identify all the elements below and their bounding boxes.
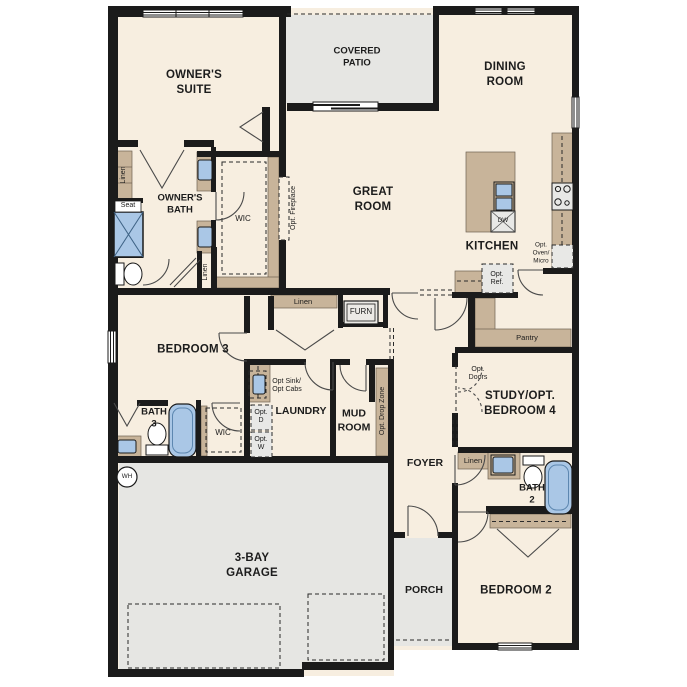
opt-ref-box (482, 264, 513, 293)
bathtub-icon (545, 461, 572, 514)
opt-washer-box (251, 432, 272, 457)
toilet-icon (523, 456, 544, 488)
sink-icon (493, 457, 513, 473)
dining-side-window (572, 97, 579, 128)
cooktop-icon (552, 183, 573, 210)
wic-shelf-bottom (216, 277, 279, 288)
bedroom3-window (108, 331, 116, 363)
bedroom2-window (498, 643, 532, 650)
sink-icon (198, 160, 212, 180)
garage-area (119, 463, 388, 670)
pantry-shelf-bottom (475, 329, 571, 347)
wic-shelf-right (268, 157, 279, 285)
bathtub-icon (169, 404, 196, 457)
sink-icon (253, 375, 265, 394)
sink-icon (496, 198, 512, 210)
patio-sliding-door (313, 102, 378, 111)
covered-patio-area (286, 15, 433, 104)
dishwasher-icon (491, 211, 515, 232)
furnace-icon (344, 301, 378, 324)
owners-linen-closet (117, 151, 132, 200)
hall-linen-shelf (271, 295, 337, 308)
sink-icon (496, 184, 512, 196)
sink-icon (198, 227, 212, 247)
toilet-icon (146, 423, 168, 455)
sink-icon (118, 440, 136, 453)
floor-plan-graphics (0, 0, 687, 687)
floor-plan: OWNER'S SUITE COVERED PATIO DINING ROOM … (0, 0, 687, 687)
toilet-icon (115, 263, 142, 285)
dining-window-1 (475, 8, 502, 14)
bed2-linen-shelf (458, 452, 490, 469)
shower-seat (115, 201, 141, 212)
opt-oven-micro-box (552, 245, 573, 268)
owners-suite-window (143, 10, 243, 17)
ref-counter (455, 271, 482, 293)
opt-fireplace-box (279, 177, 289, 240)
drop-zone-bench (376, 368, 389, 456)
opt-dryer-box (251, 405, 272, 430)
water-heater-icon (117, 467, 137, 487)
porch-area (394, 538, 452, 646)
dining-window-2 (507, 8, 535, 14)
